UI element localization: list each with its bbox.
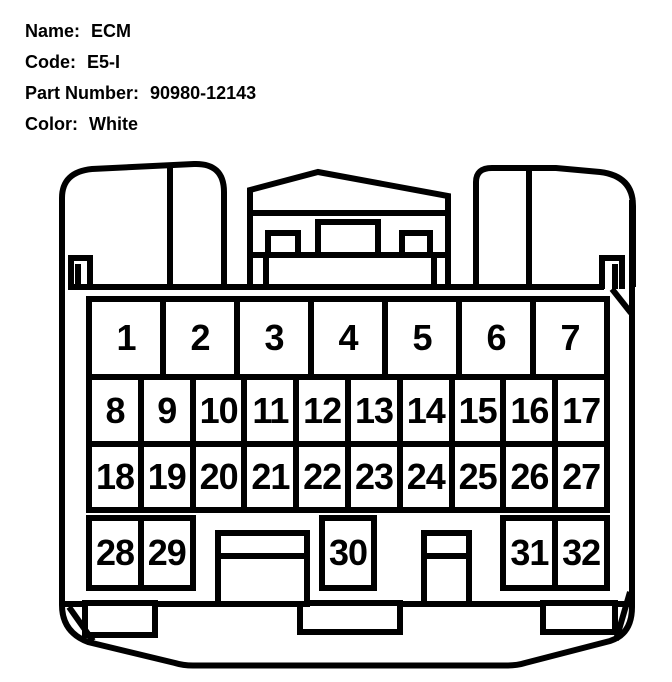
pin-cell-4: 4 (308, 296, 388, 380)
pin-cell-24: 24 (397, 441, 455, 513)
pin-cell-11: 11 (241, 374, 299, 447)
pin-cell-19: 19 (138, 441, 196, 513)
pin-cell-13: 13 (345, 374, 403, 447)
pin-cell-32: 32 (552, 515, 610, 591)
pin-cell-5: 5 (382, 296, 462, 380)
keying-block-large-rib (221, 553, 304, 559)
pin-cell-10: 10 (190, 374, 248, 447)
bottom-tab-right (543, 603, 615, 632)
connector-diagram: 1234567891011121314151617181920212223242… (0, 0, 672, 682)
top-right-bevel (612, 289, 631, 313)
pin-cell-31: 31 (500, 515, 558, 591)
keying-block-large (215, 530, 310, 607)
latch-side-walls (266, 255, 434, 287)
latch-lug-left (268, 233, 298, 255)
latch-lug-center (318, 222, 378, 255)
pin-cell-9: 9 (138, 374, 196, 447)
right-mount-tab (476, 168, 633, 287)
pin-cell-23: 23 (345, 441, 403, 513)
pin-cell-14: 14 (397, 374, 455, 447)
keying-block-small-rib (427, 553, 466, 559)
connector-pinout-document: Name:ECMCode:E5-IPart Number:90980-12143… (0, 0, 672, 682)
pin-cell-29: 29 (138, 515, 196, 591)
right-slot (602, 258, 622, 289)
pin-cell-2: 2 (160, 296, 240, 380)
pin-cell-17: 17 (552, 374, 610, 447)
pin-cell-28: 28 (86, 515, 144, 591)
pin-cell-18: 18 (86, 441, 144, 513)
pin-cell-3: 3 (234, 296, 314, 380)
pin-cell-16: 16 (500, 374, 558, 447)
pin-cell-25: 25 (449, 441, 507, 513)
bottom-tab-center (300, 603, 400, 632)
left-mount-tab (62, 164, 224, 287)
left-slot (71, 258, 90, 289)
bottom-tab-left (85, 603, 155, 635)
pin-cell-27: 27 (552, 441, 610, 513)
pin-cell-6: 6 (456, 296, 536, 380)
pin-cell-26: 26 (500, 441, 558, 513)
keying-block-small (421, 530, 472, 607)
pin-cell-20: 20 (190, 441, 248, 513)
pin-cell-12: 12 (293, 374, 351, 447)
pin-cell-22: 22 (293, 441, 351, 513)
pin-cell-1: 1 (86, 296, 166, 380)
pin-cell-30: 30 (319, 515, 377, 591)
latch-lug-right (402, 233, 430, 255)
pin-cell-7: 7 (530, 296, 610, 380)
pin-cell-21: 21 (241, 441, 299, 513)
pin-cell-8: 8 (86, 374, 144, 447)
pin-cell-15: 15 (449, 374, 507, 447)
